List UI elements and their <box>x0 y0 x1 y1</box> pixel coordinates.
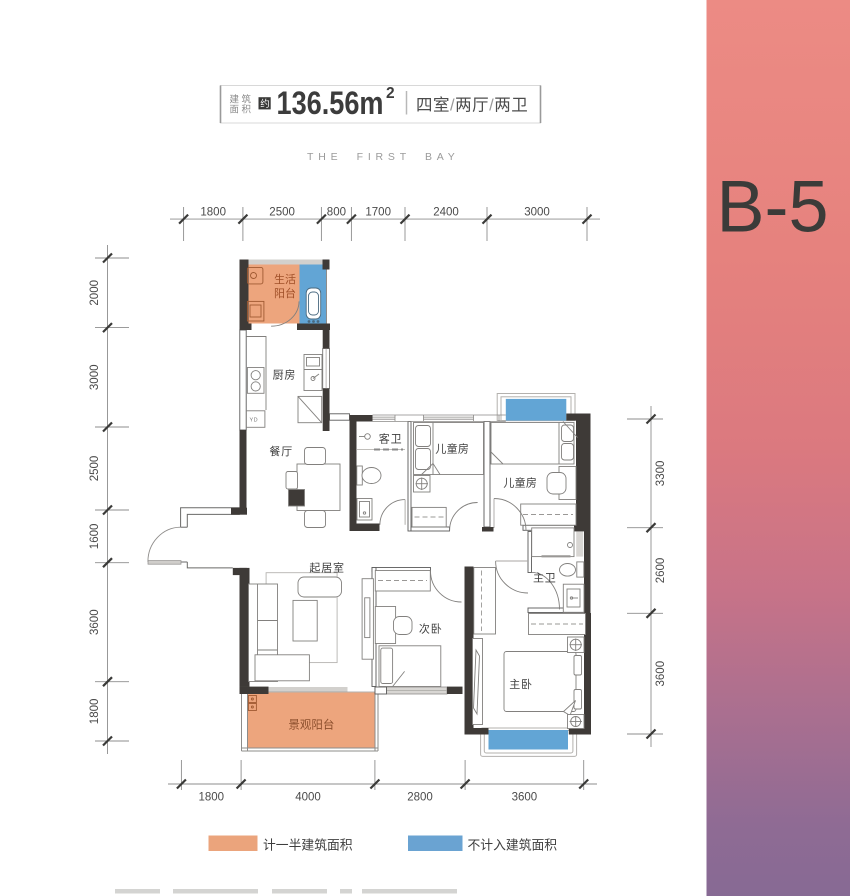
svg-text:计一半建筑面积: 计一半建筑面积 <box>263 838 353 853</box>
svg-text:THE FIRST BAY: THE FIRST BAY <box>307 151 460 163</box>
svg-text:儿童房: 儿童房 <box>503 476 537 490</box>
svg-text:起居室: 起居室 <box>309 561 344 575</box>
svg-text:儿童房: 儿童房 <box>435 442 469 456</box>
svg-text:2600: 2600 <box>655 558 667 584</box>
svg-text:2500: 2500 <box>89 456 101 482</box>
svg-text:1800: 1800 <box>200 207 226 219</box>
svg-text:四室/两厅/两卫: 四室/两厅/两卫 <box>416 96 528 115</box>
svg-text:景观阳台: 景观阳台 <box>288 718 334 732</box>
svg-text:不计入建筑面积: 不计入建筑面积 <box>468 838 558 853</box>
svg-text:客卫: 客卫 <box>379 432 403 446</box>
svg-text:1700: 1700 <box>365 207 391 219</box>
svg-text:136.56m: 136.56m <box>277 85 384 121</box>
svg-text:2: 2 <box>386 85 395 102</box>
svg-text:生活: 生活 <box>274 272 296 286</box>
svg-text:3600: 3600 <box>655 661 667 687</box>
svg-text:1800: 1800 <box>89 699 101 725</box>
svg-text:餐厅: 餐厅 <box>269 444 293 458</box>
svg-text:2500: 2500 <box>269 207 295 219</box>
svg-text:YD: YD <box>250 418 259 424</box>
svg-text:次卧: 次卧 <box>419 622 443 636</box>
svg-text:4000: 4000 <box>295 792 321 804</box>
svg-text:3000: 3000 <box>89 365 101 391</box>
svg-text:面积: 面积 <box>230 104 254 116</box>
svg-text:3600: 3600 <box>512 792 538 804</box>
svg-text:阳台: 阳台 <box>274 286 296 300</box>
svg-text:3000: 3000 <box>524 207 550 219</box>
svg-text:B-5: B-5 <box>717 167 829 248</box>
svg-text:厨房: 厨房 <box>273 369 297 382</box>
svg-text:主卫: 主卫 <box>533 572 557 585</box>
svg-text:2800: 2800 <box>407 792 433 804</box>
svg-text:约: 约 <box>260 98 270 110</box>
svg-text:800: 800 <box>327 207 346 219</box>
svg-text:1800: 1800 <box>199 792 225 804</box>
svg-text:2400: 2400 <box>433 207 459 219</box>
svg-text:主卧: 主卧 <box>509 678 533 691</box>
svg-text:3300: 3300 <box>655 461 667 487</box>
svg-text:3600: 3600 <box>89 609 101 635</box>
svg-text:1600: 1600 <box>89 524 101 550</box>
svg-text:2000: 2000 <box>89 280 101 306</box>
